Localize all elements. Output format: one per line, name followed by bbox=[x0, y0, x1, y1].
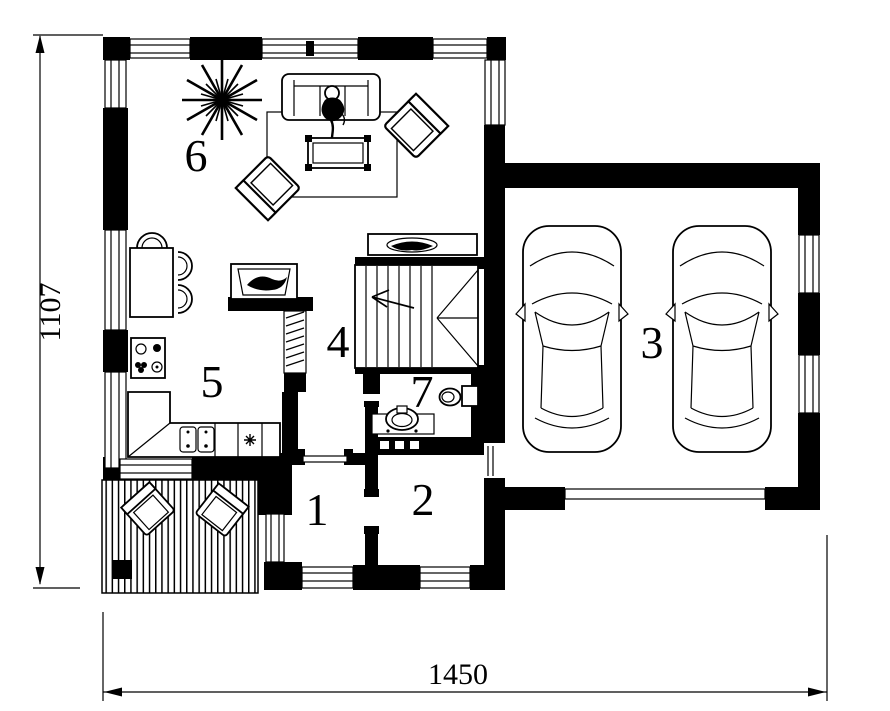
garage-door-icon bbox=[565, 489, 765, 499]
room-label-5: 5 bbox=[201, 356, 224, 407]
window-icon bbox=[485, 60, 505, 125]
room-label-3: 3 bbox=[641, 317, 664, 368]
window-icon bbox=[105, 60, 126, 108]
wc-wall-tiles bbox=[380, 441, 419, 449]
dining-chair-icon bbox=[178, 252, 192, 280]
dimension-width-label: 1450 bbox=[428, 658, 488, 691]
window-icon bbox=[420, 567, 470, 588]
floor-plan-canvas: 1107 1450 bbox=[0, 0, 890, 711]
room-label-6: 6 bbox=[185, 130, 208, 181]
tv-area bbox=[231, 264, 306, 373]
window-icon bbox=[120, 459, 192, 479]
window-icon bbox=[302, 567, 353, 588]
dining-chair-icon bbox=[137, 233, 167, 248]
floor-plan-page: 1107 1450 bbox=[0, 0, 890, 711]
toilet-icon bbox=[440, 386, 479, 406]
living-room-furniture bbox=[182, 60, 448, 220]
dining-table-icon bbox=[130, 248, 173, 317]
dining-chair-icon bbox=[178, 285, 192, 313]
armchair-icon bbox=[236, 156, 300, 220]
plant-icon bbox=[182, 60, 262, 140]
armchair-icon bbox=[384, 94, 448, 158]
door-icon bbox=[303, 456, 347, 462]
window-icon bbox=[105, 230, 126, 330]
window-icon bbox=[130, 39, 190, 58]
room-label-2: 2 bbox=[412, 474, 435, 525]
stove-icon bbox=[131, 338, 165, 378]
window-icon bbox=[433, 39, 487, 58]
door-icon bbox=[488, 446, 493, 476]
room-label-1: 1 bbox=[306, 484, 329, 535]
column-icon bbox=[112, 560, 132, 579]
car-icon bbox=[666, 226, 778, 452]
console-table-icon bbox=[368, 234, 477, 255]
door-icon bbox=[266, 514, 284, 562]
window-icon bbox=[799, 235, 819, 293]
dining-furniture bbox=[130, 233, 192, 317]
dimension-height-label: 1107 bbox=[34, 283, 67, 342]
window-icon bbox=[105, 372, 126, 468]
room-label-4: 4 bbox=[327, 316, 350, 367]
coffee-table-icon bbox=[305, 135, 371, 171]
stairs-icon bbox=[355, 234, 478, 368]
room-label-7: 7 bbox=[411, 366, 434, 417]
window-icon bbox=[262, 39, 358, 58]
shelf-hatch bbox=[284, 311, 306, 373]
window-icon bbox=[799, 355, 819, 413]
car-icon bbox=[516, 226, 628, 452]
terrace bbox=[102, 480, 258, 593]
